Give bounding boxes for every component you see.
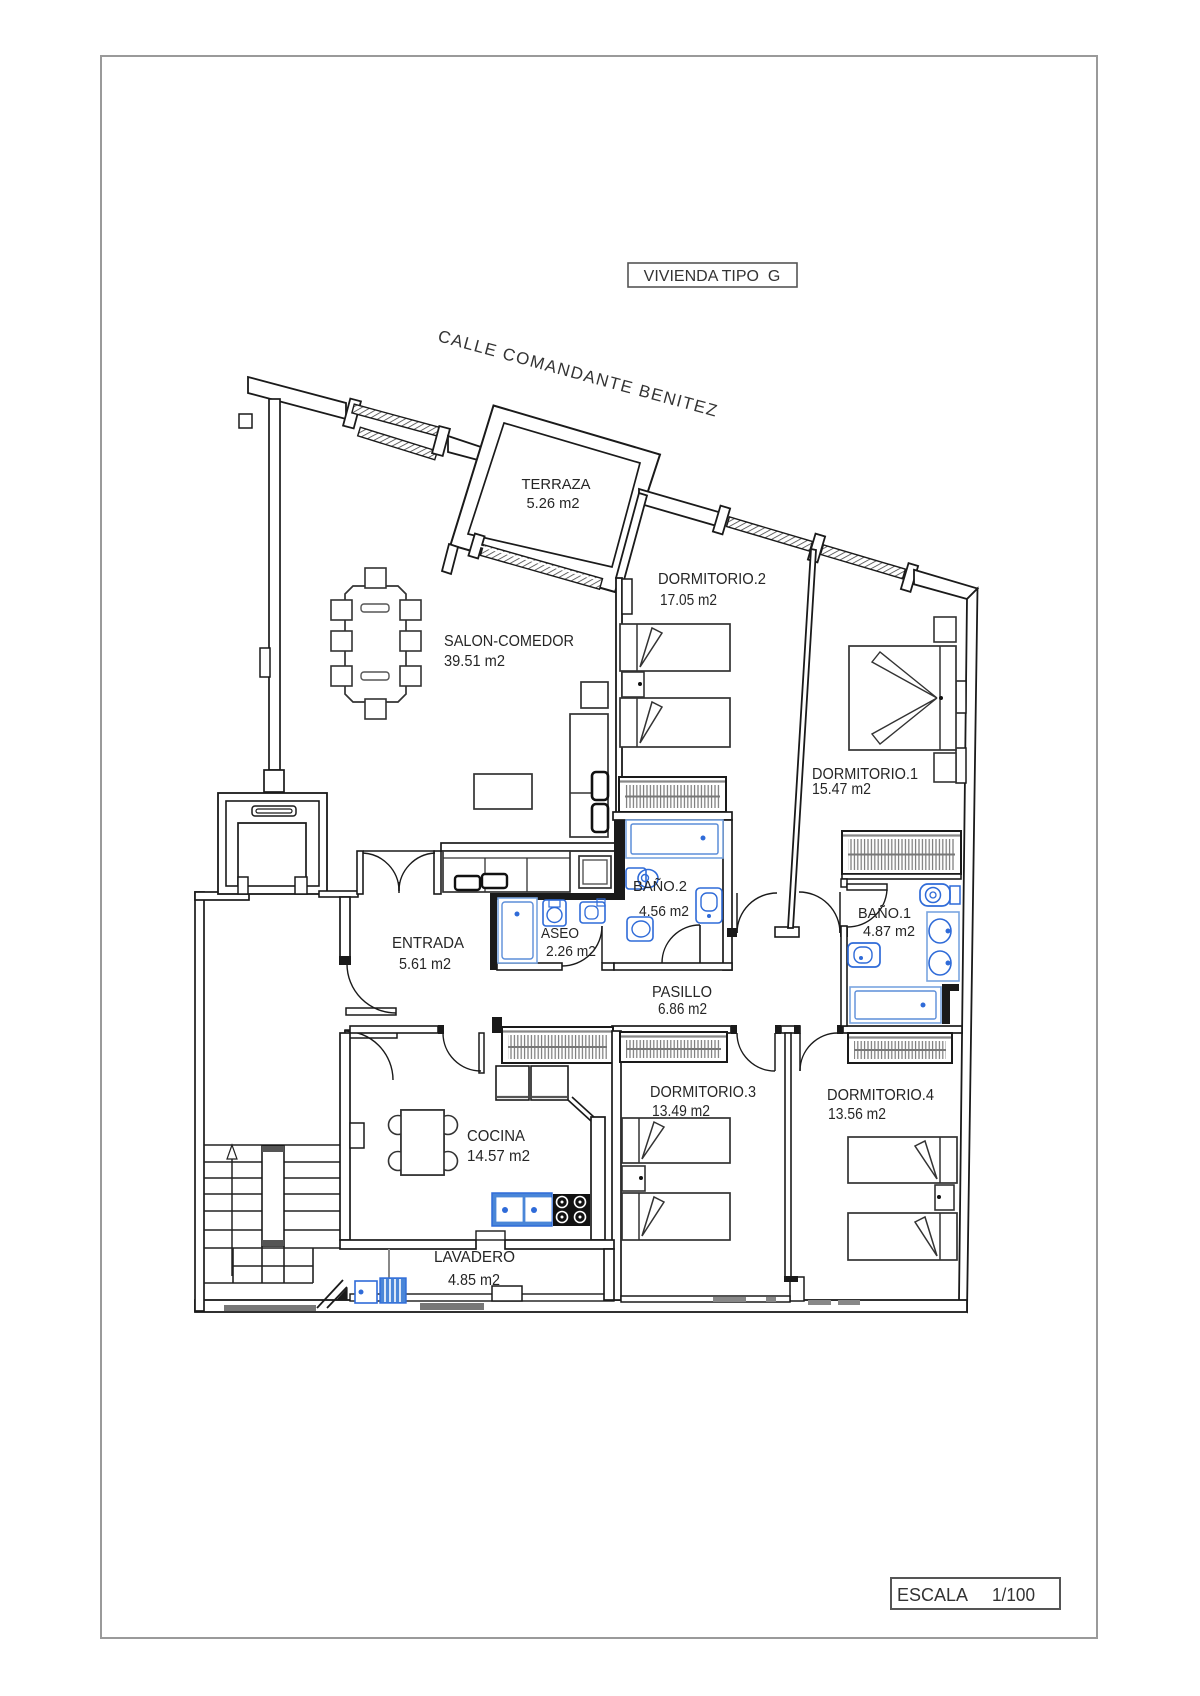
svg-text:BAÑO.2: BAÑO.2: [633, 878, 687, 895]
svg-text:ESCALA: ESCALA: [897, 1585, 968, 1605]
svg-text:14.57 m2: 14.57 m2: [467, 1148, 530, 1165]
svg-text:DORMITORIO.2: DORMITORIO.2: [658, 571, 766, 588]
svg-text:6.86 m2: 6.86 m2: [658, 1001, 707, 1018]
svg-text:DORMITORIO.3: DORMITORIO.3: [650, 1084, 756, 1101]
svg-text:15.47 m2: 15.47 m2: [812, 781, 871, 798]
svg-text:SALON-COMEDOR: SALON-COMEDOR: [444, 633, 574, 650]
svg-text:17.05 m2: 17.05 m2: [660, 592, 717, 609]
svg-text:5.26 m2: 5.26 m2: [527, 495, 580, 512]
svg-text:ENTRADA: ENTRADA: [392, 935, 464, 952]
svg-text:DORMITORIO.4: DORMITORIO.4: [827, 1087, 934, 1104]
svg-text:39.51 m2: 39.51 m2: [444, 653, 505, 670]
svg-text:VIVIENDA TIPO G: VIVIENDA TIPO G: [644, 268, 781, 285]
svg-text:LAVADERO: LAVADERO: [434, 1249, 515, 1266]
svg-text:PASILLO: PASILLO: [652, 984, 712, 1001]
svg-text:COCINA: COCINA: [467, 1128, 525, 1145]
svg-text:13.49 m2: 13.49 m2: [652, 1103, 710, 1120]
svg-text:4.87 m2: 4.87 m2: [863, 923, 915, 940]
svg-text:13.56 m2: 13.56 m2: [828, 1106, 886, 1123]
svg-text:BAÑO.1: BAÑO.1: [858, 905, 911, 922]
svg-text:1/100: 1/100: [992, 1585, 1035, 1605]
svg-text:ASEO: ASEO: [541, 925, 579, 942]
svg-text:4.56 m2: 4.56 m2: [639, 903, 689, 920]
svg-text:4.85 m2: 4.85 m2: [448, 1272, 500, 1289]
svg-text:TERRAZA: TERRAZA: [522, 476, 591, 493]
svg-text:2.26 m2: 2.26 m2: [546, 943, 596, 960]
svg-text:5.61 m2: 5.61 m2: [399, 956, 451, 973]
